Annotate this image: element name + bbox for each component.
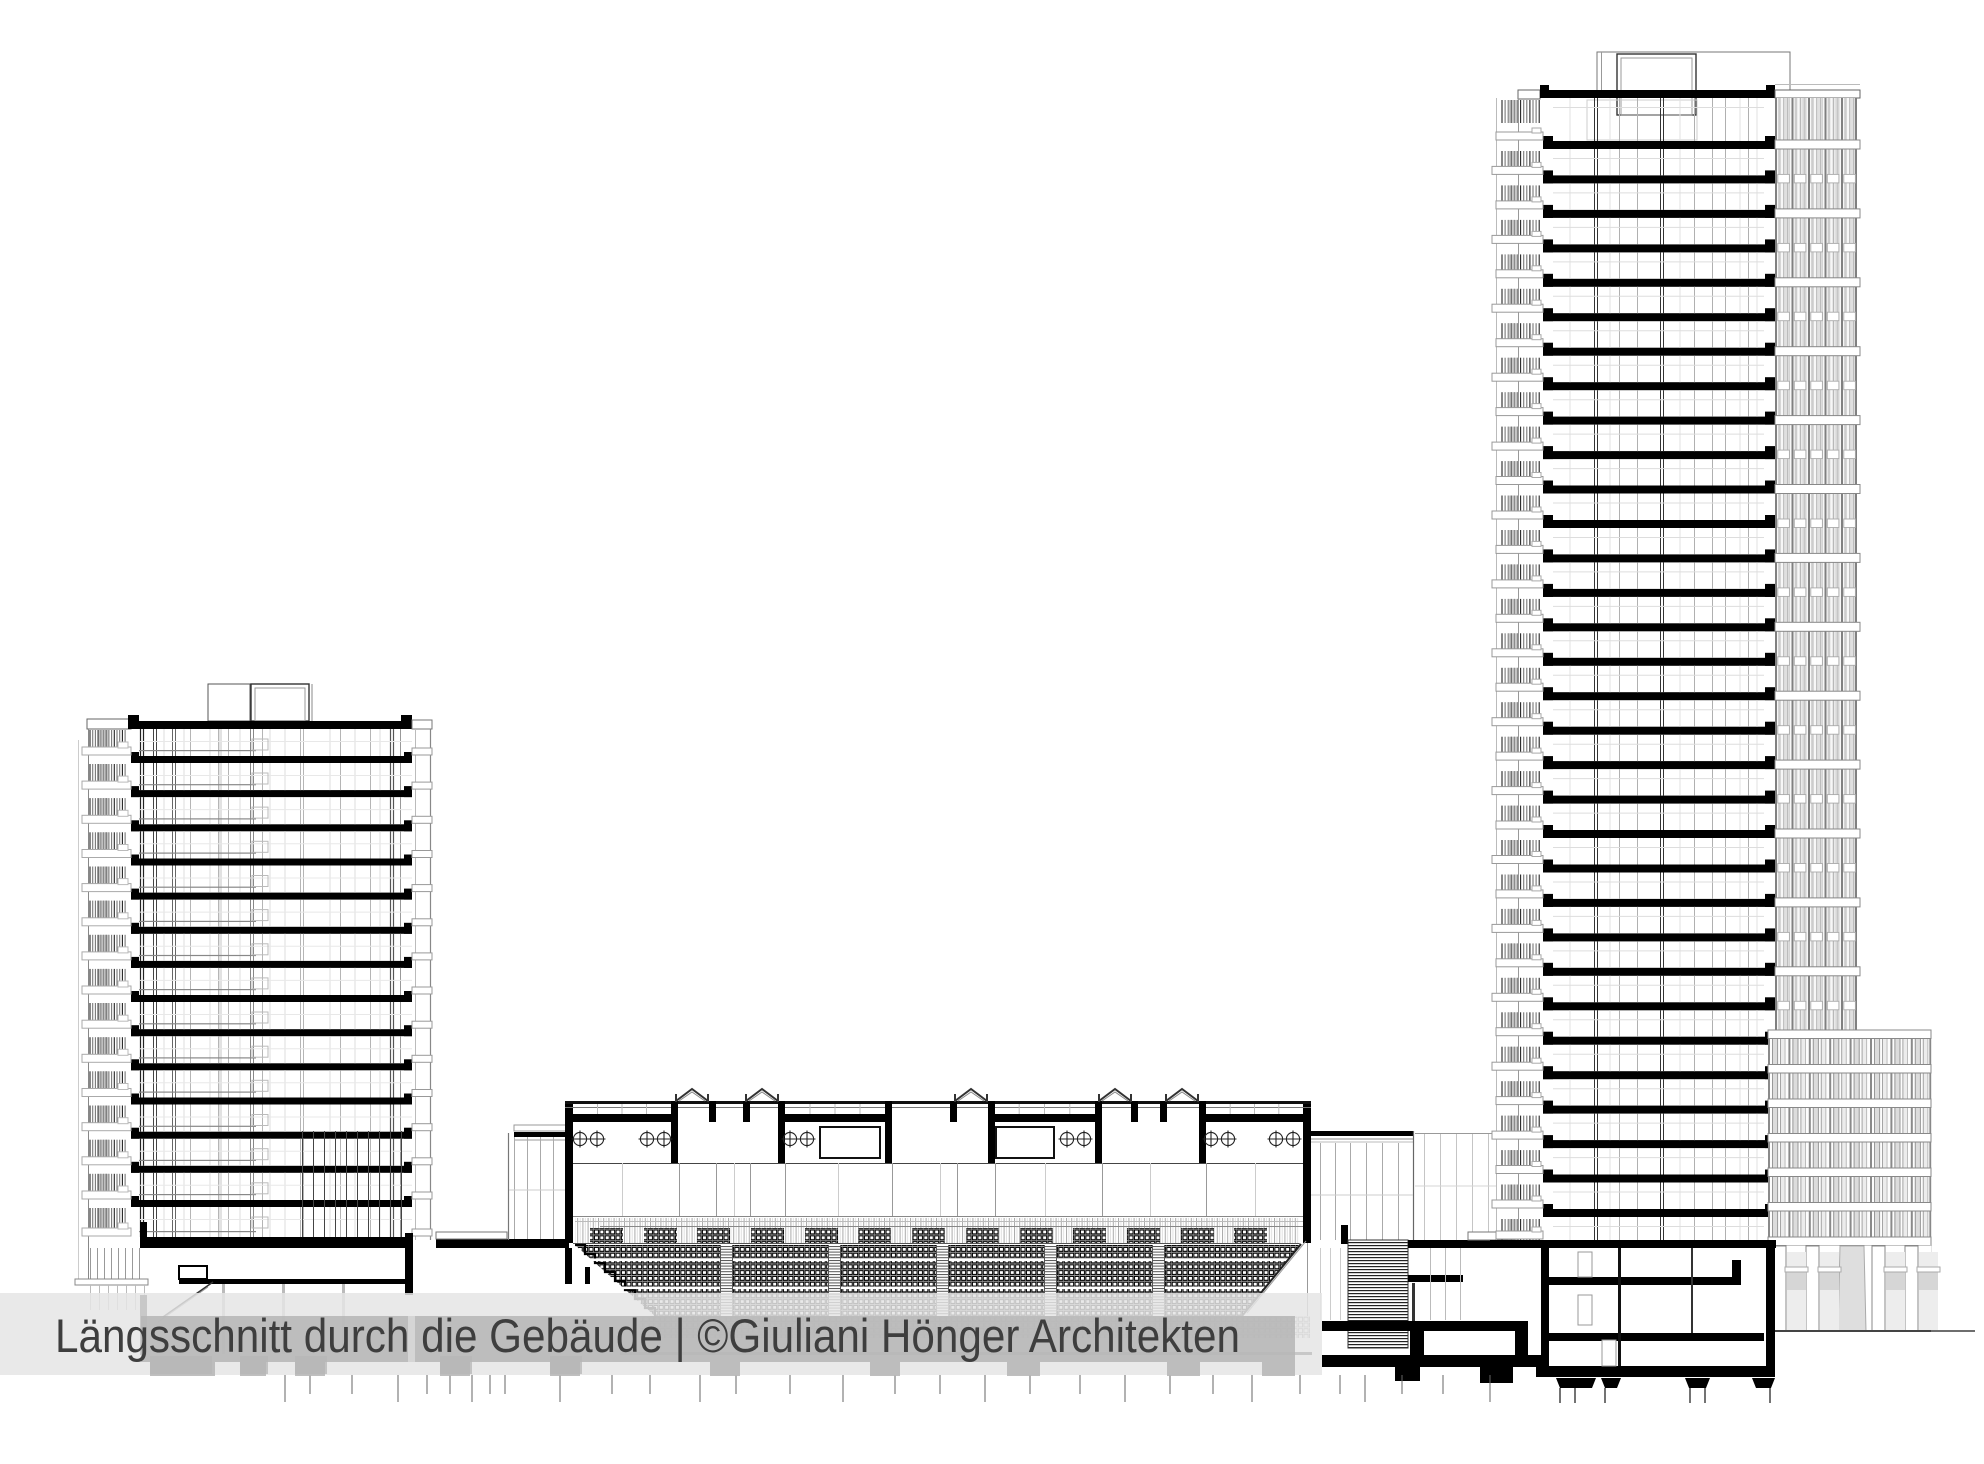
svg-text:Längsschnitt durch die Gebäude: Längsschnitt durch die Gebäude | ©Giulia… <box>55 1309 1240 1362</box>
